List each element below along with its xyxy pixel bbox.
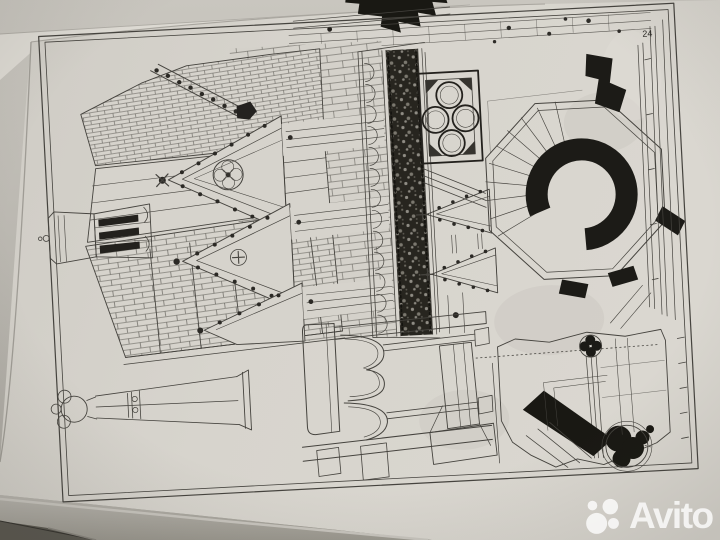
photo-of-book-page: 24 [0,0,720,540]
watermark: Avito [582,494,713,536]
watermark-text: Avito [629,497,713,534]
book-page-photo: 24 [0,0,720,540]
photo-vignette [0,0,720,540]
avito-logo-icon [582,494,626,536]
